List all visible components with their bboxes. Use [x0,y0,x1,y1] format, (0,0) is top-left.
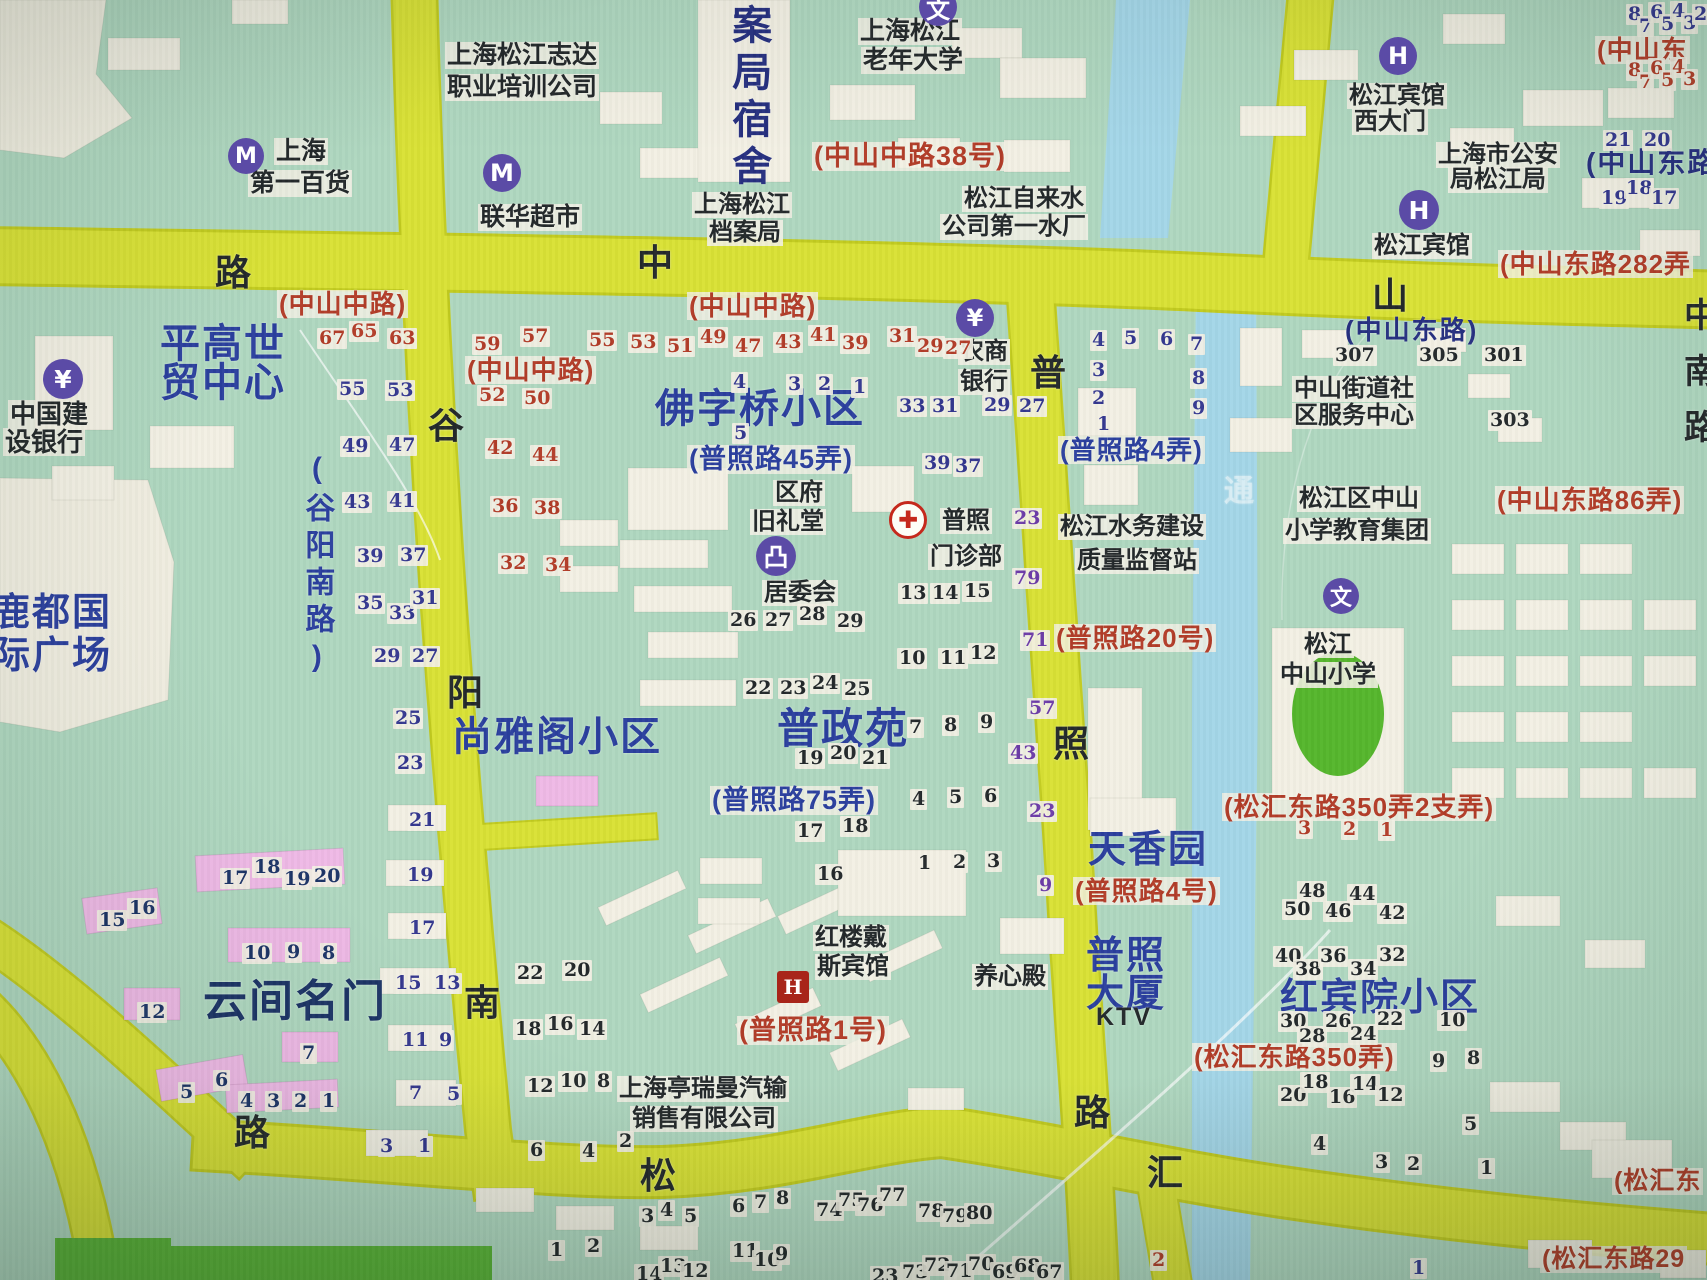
bank-icon: ¥ [43,359,83,399]
community-icon: 凸 [756,536,796,576]
hotel-icon: H [777,971,809,1003]
hotel-icon: H [1399,190,1439,230]
map-photo: 路中山谷阳南普照路松汇路中南路通(中山中路)(中山中路)(中山中路)(中山中路3… [0,0,1707,1280]
hospital-icon: ✚ [889,501,927,539]
metro-icon: M [483,154,521,192]
metro-icon: M [228,138,264,174]
icons-layer: MM文文¥¥HHH✚凸 [0,0,1707,1280]
hotel-icon: H [1379,37,1417,75]
bank-icon: ¥ [956,299,994,337]
school-icon: 文 [919,0,957,26]
school-icon: 文 [1323,578,1359,614]
